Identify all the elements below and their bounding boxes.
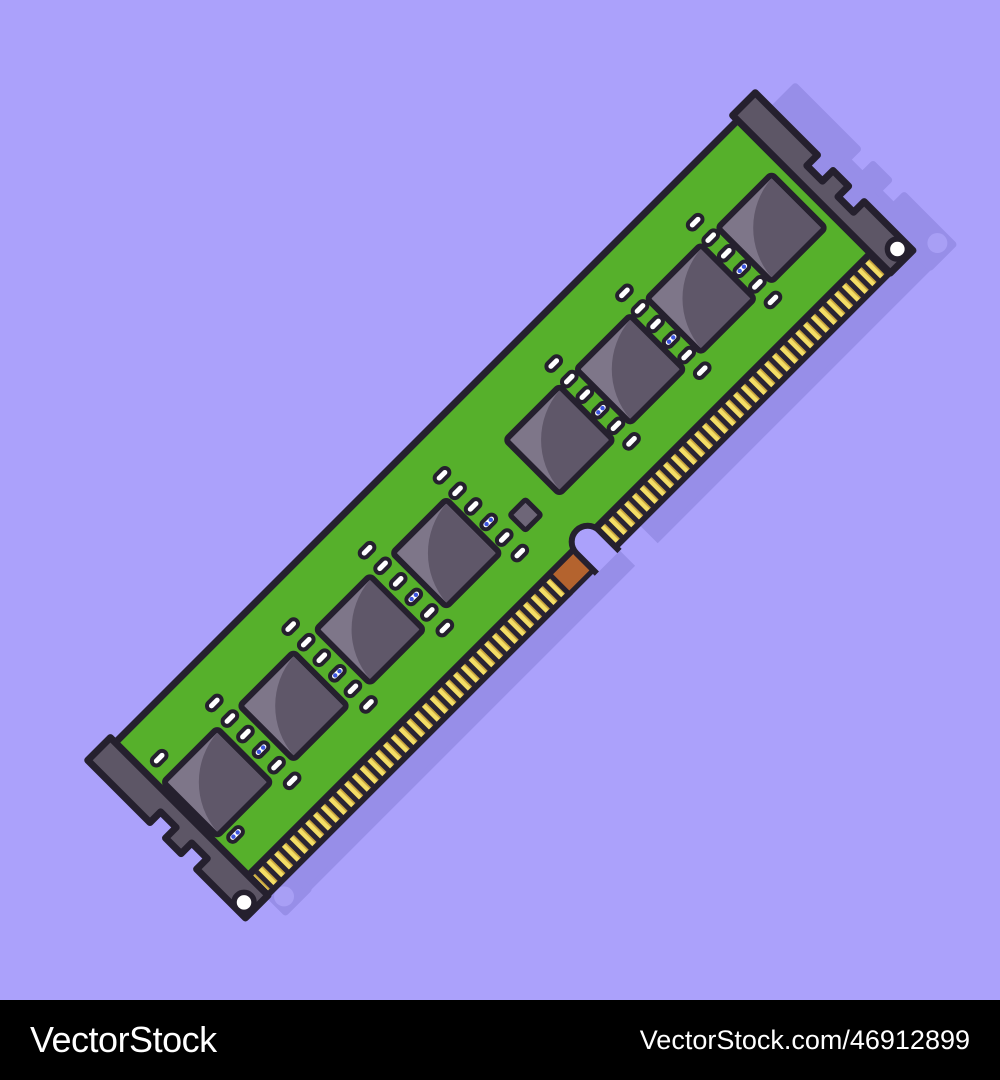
illustration-canvas — [0, 0, 1000, 1000]
watermark-bar: VectorStock VectorStock.com/46912899 — [0, 1000, 1000, 1080]
brand-watermark: VectorStock — [30, 1019, 217, 1061]
image-url-watermark: VectorStock.com/46912899 — [640, 1025, 970, 1056]
stock-image-page: { "watermark": { "brand": "VectorStock",… — [0, 0, 1000, 1080]
ram-stick-illustration — [0, 0, 1000, 1000]
